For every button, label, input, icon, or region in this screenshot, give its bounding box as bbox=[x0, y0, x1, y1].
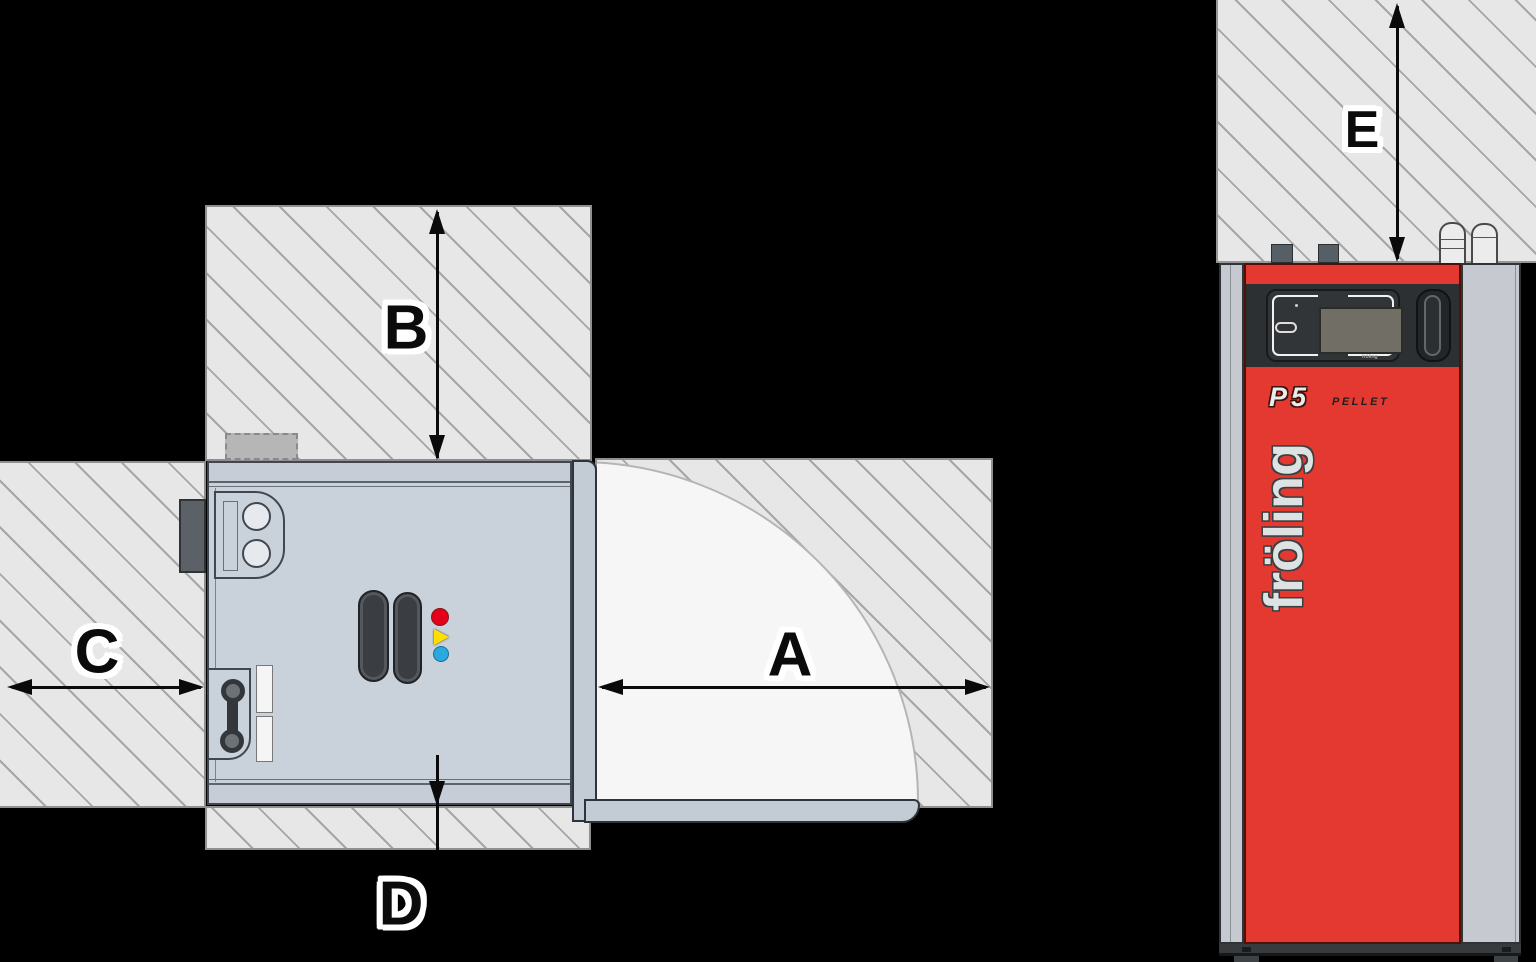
flue-pipe-right bbox=[1471, 223, 1498, 263]
card-slot[interactable] bbox=[1275, 322, 1297, 333]
wall-bottom-strip bbox=[205, 806, 591, 850]
dimension-label-b: B bbox=[384, 293, 429, 364]
boiler-top-stub-left bbox=[1271, 244, 1293, 263]
flue-pipe-left-flange-line-2 bbox=[1441, 248, 1464, 249]
front-door-handle-recess bbox=[1416, 289, 1451, 362]
flue-pipe-left-flange-line-1 bbox=[1441, 239, 1464, 240]
pipe-port-bottom bbox=[242, 539, 271, 568]
dim-arrow-e-shaft bbox=[1396, 6, 1399, 259]
dimension-label-c: C bbox=[75, 617, 120, 688]
boiler-front-view: fröling P5 PELLET fröling bbox=[1219, 263, 1521, 962]
flue-pipe-right-flange-line bbox=[1473, 237, 1496, 238]
model-logo-pellet: PELLET bbox=[1332, 396, 1389, 408]
dim-arrow-b-head-up bbox=[429, 209, 445, 234]
dim-arrow-c-head-left bbox=[7, 679, 32, 695]
front-side-panel-right bbox=[1461, 263, 1521, 944]
boiler-door-open-bar bbox=[584, 799, 920, 823]
dim-arrow-b-head-down bbox=[429, 435, 445, 460]
base-bolts-right-icon bbox=[1502, 947, 1511, 952]
dim-arrow-e-head-down bbox=[1389, 237, 1405, 262]
base-bolts-left-icon bbox=[1242, 947, 1251, 952]
flue-outlet-box bbox=[179, 499, 206, 573]
boiler-top-view bbox=[207, 461, 572, 805]
status-dot-icon bbox=[1295, 304, 1298, 307]
front-red-panel: fröling P5 PELLET fröling bbox=[1244, 263, 1461, 944]
front-side-panel-right-seam bbox=[1515, 265, 1516, 942]
door-handle-left bbox=[358, 590, 389, 682]
service-slot-lower bbox=[256, 716, 273, 762]
dim-arrow-a-head-right bbox=[965, 679, 990, 695]
led-yellow-triangle-icon bbox=[434, 629, 449, 645]
diagram-canvas: B C A D E bbox=[0, 0, 1536, 962]
front-side-panel-left-seam bbox=[1230, 265, 1231, 942]
led-blue-icon bbox=[434, 647, 448, 661]
pipe-port-top bbox=[242, 502, 271, 531]
front-side-panel-left bbox=[1219, 263, 1244, 944]
valve-housing bbox=[207, 668, 251, 760]
boiler-bottom-edge-band bbox=[209, 783, 570, 803]
boiler-foot-right bbox=[1494, 956, 1518, 962]
housing-mount-rail bbox=[223, 501, 238, 571]
brand-logo-vertical: fröling bbox=[1256, 422, 1312, 632]
dim-arrow-e-head-up bbox=[1389, 3, 1405, 28]
display-brand-text: fröling bbox=[1362, 354, 1378, 360]
door-swing-arc bbox=[595, 461, 919, 808]
dim-arrow-b-shaft bbox=[436, 212, 439, 458]
boiler-base-strip bbox=[1219, 944, 1521, 956]
door-handle-right bbox=[393, 592, 422, 684]
flue-connection-dashed-box bbox=[225, 433, 298, 460]
dimension-label-a: A bbox=[768, 620, 813, 691]
display-screen[interactable] bbox=[1319, 307, 1403, 354]
boiler-top-edge-band bbox=[209, 463, 570, 483]
dimension-label-e: E bbox=[1345, 100, 1380, 160]
boiler-bottom-seam-line bbox=[209, 779, 570, 780]
valve-fitting-bottom bbox=[220, 729, 244, 753]
flue-pipe-left bbox=[1439, 222, 1466, 263]
display-band: fröling bbox=[1246, 284, 1459, 367]
pipe-connection-housing bbox=[214, 491, 285, 579]
front-door-handle[interactable] bbox=[1424, 295, 1441, 356]
dim-arrow-c-head-right bbox=[179, 679, 204, 695]
model-logo-p5: P5 bbox=[1269, 382, 1310, 413]
dimension-label-d: D bbox=[379, 869, 424, 940]
boiler-door-closed-strip bbox=[572, 460, 597, 822]
display-bezel-frame-gap-top bbox=[1318, 294, 1348, 299]
service-slot-upper bbox=[256, 665, 273, 713]
led-red-icon bbox=[432, 609, 448, 625]
boiler-foot-left bbox=[1234, 956, 1259, 962]
boiler-top-seam-line bbox=[209, 486, 570, 487]
valve-fitting-top bbox=[221, 679, 245, 703]
dim-arrow-d-head-down bbox=[429, 781, 445, 806]
dim-arrow-a-head-left bbox=[598, 679, 623, 695]
boiler-top-stub-right bbox=[1318, 244, 1339, 263]
display-bezel: fröling bbox=[1266, 289, 1400, 362]
